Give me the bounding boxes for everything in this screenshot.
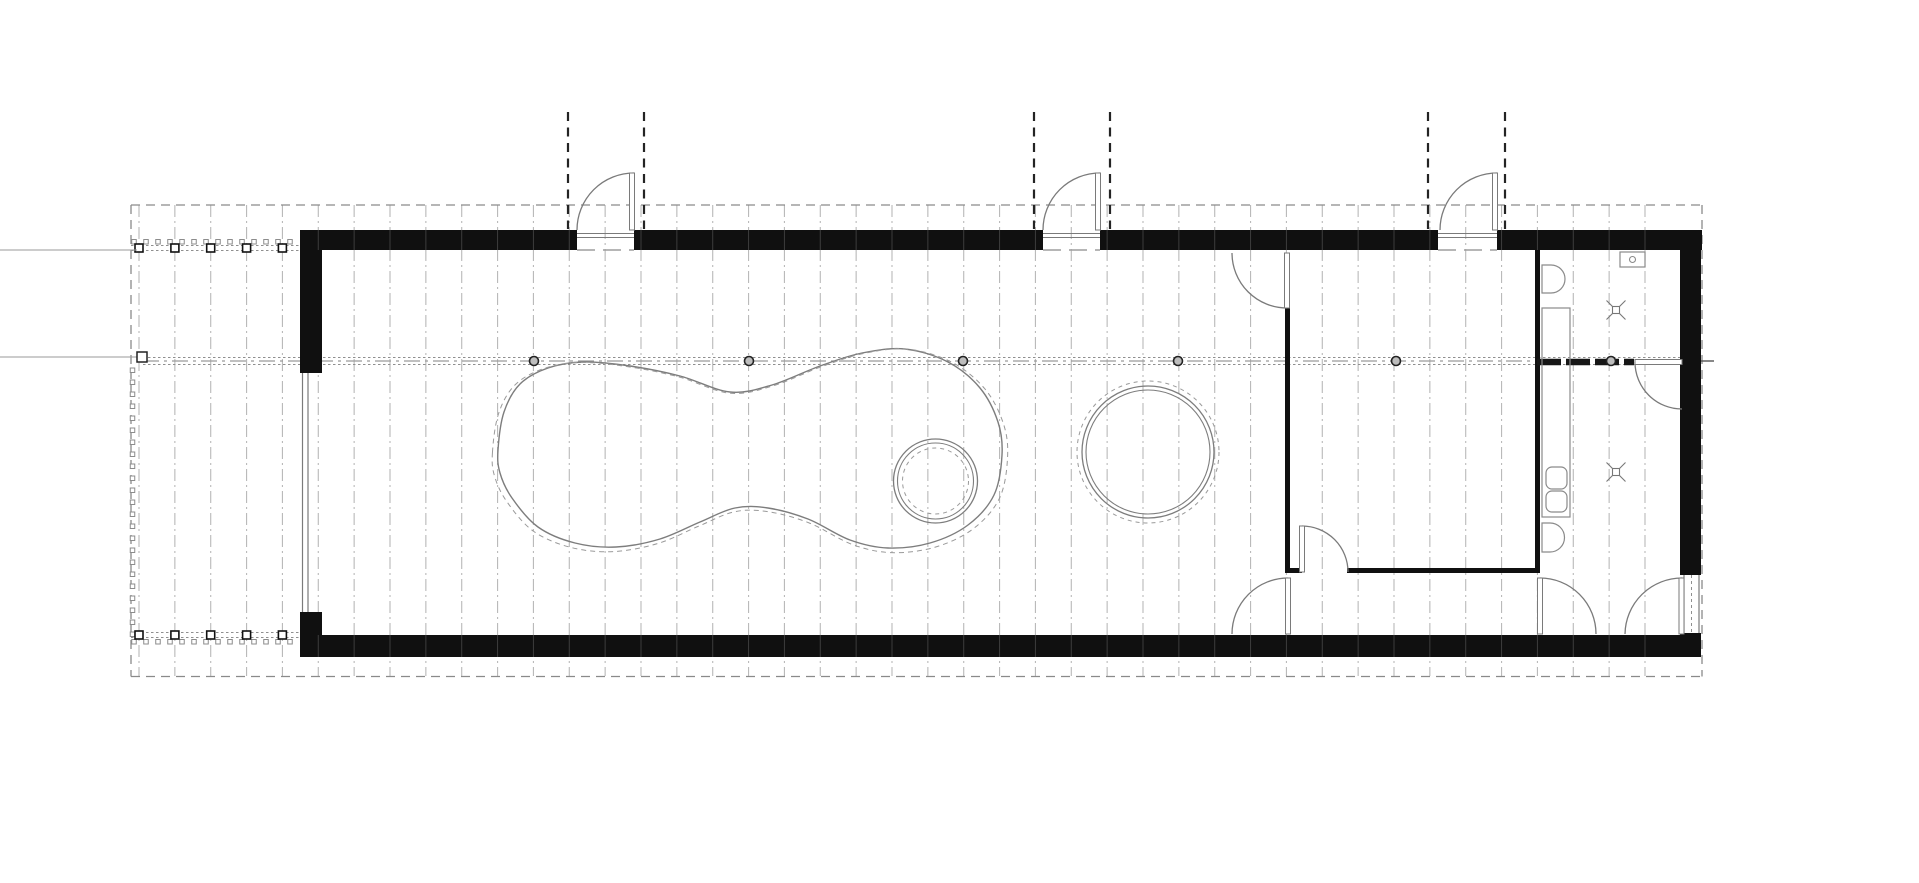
porch-plank-mark (130, 476, 135, 481)
porch-plank-mark (130, 512, 135, 517)
porch-post (135, 631, 143, 639)
wall (300, 230, 577, 250)
porch-plank-mark (216, 640, 221, 645)
wall (300, 230, 322, 373)
wall (1100, 230, 1438, 250)
porch-plank-mark (132, 640, 137, 645)
reference-marker-square (137, 352, 147, 362)
ridge-column-node (745, 357, 754, 366)
porch-plank-mark (130, 584, 135, 589)
ridge-column-node (1607, 357, 1616, 366)
porch-plank-mark (130, 452, 135, 457)
porch-post (207, 244, 215, 252)
porch-plank-mark (130, 464, 135, 469)
porch-plank-mark (130, 380, 135, 385)
porch-plank-mark (180, 240, 185, 245)
sink-bowl (1546, 491, 1567, 512)
ridge-column-node (1392, 357, 1401, 366)
door-leaf (1300, 526, 1305, 572)
porch-plank-mark (130, 500, 135, 505)
porch-plank-mark (156, 240, 161, 245)
porch-plank-mark (276, 640, 281, 645)
porch-plank-mark (130, 572, 135, 577)
porch-plank-mark (130, 548, 135, 553)
door-leaf (1286, 578, 1291, 634)
porch-post (171, 244, 179, 252)
porch-plank-mark (228, 240, 233, 245)
wall (1347, 568, 1540, 573)
porch-plank-mark (130, 404, 135, 409)
porch-plank-mark (130, 368, 135, 373)
porch-plank-mark (130, 536, 135, 541)
porch-plank-mark (264, 640, 269, 645)
porch-plank-mark (192, 640, 197, 645)
porch-post (243, 244, 251, 252)
porch-plank-mark (216, 240, 221, 245)
porch-plank-mark (130, 596, 135, 601)
door-leaf (1096, 173, 1101, 230)
door-leaf (1635, 360, 1682, 365)
porch-plank-mark (288, 640, 293, 645)
door-leaf (1679, 578, 1684, 634)
door-leaf (1538, 578, 1543, 634)
wall (1497, 230, 1702, 250)
porch-plank-mark (130, 428, 135, 433)
porch-plank-mark (130, 440, 135, 445)
porch-plank-mark (130, 488, 135, 493)
porch-post (278, 244, 286, 252)
porch-plank-mark (130, 392, 135, 397)
ridge-column-node (1174, 357, 1183, 366)
ridge-column-node (959, 357, 968, 366)
porch-plank-mark (252, 240, 257, 245)
door-leaf (1285, 253, 1290, 308)
wall (300, 635, 1701, 657)
paper-background (0, 0, 1919, 883)
wall (1285, 308, 1290, 571)
porch-plank-mark (144, 240, 149, 245)
porch-plank-mark (168, 640, 173, 645)
porch-plank-mark (180, 640, 185, 645)
porch-plank-mark (228, 640, 233, 645)
ridge-column-node (530, 357, 539, 366)
porch-plank-mark (156, 640, 161, 645)
porch-plank-mark (264, 240, 269, 245)
porch-plank-mark (192, 240, 197, 245)
porch-plank-mark (240, 640, 245, 645)
door-leaf (1493, 173, 1498, 230)
porch-plank-mark (130, 560, 135, 565)
door-leaf (630, 173, 635, 230)
wall (634, 230, 1043, 250)
porch-plank-mark (144, 640, 149, 645)
floor-plan-canvas (0, 0, 1919, 883)
cistern (1620, 252, 1645, 267)
porch-post (243, 631, 251, 639)
wall (1680, 633, 1701, 657)
porch-post (171, 631, 179, 639)
porch-plank-mark (130, 524, 135, 529)
porch-plank-mark (130, 632, 135, 637)
porch-plank-mark (288, 240, 293, 245)
toilet-bottom (1542, 523, 1565, 552)
porch-plank-mark (204, 640, 209, 645)
porch-post (135, 244, 143, 252)
floor-plan-drawing (0, 0, 1919, 883)
porch-plank-mark (130, 620, 135, 625)
porch-post (278, 631, 286, 639)
porch-post (207, 631, 215, 639)
toilet-top (1542, 265, 1565, 293)
porch-plank-mark (130, 416, 135, 421)
wall (1680, 250, 1701, 575)
porch-plank-mark (252, 640, 257, 645)
wall (1535, 250, 1540, 573)
porch-plank-mark (130, 608, 135, 613)
sink-bowl (1546, 467, 1567, 489)
